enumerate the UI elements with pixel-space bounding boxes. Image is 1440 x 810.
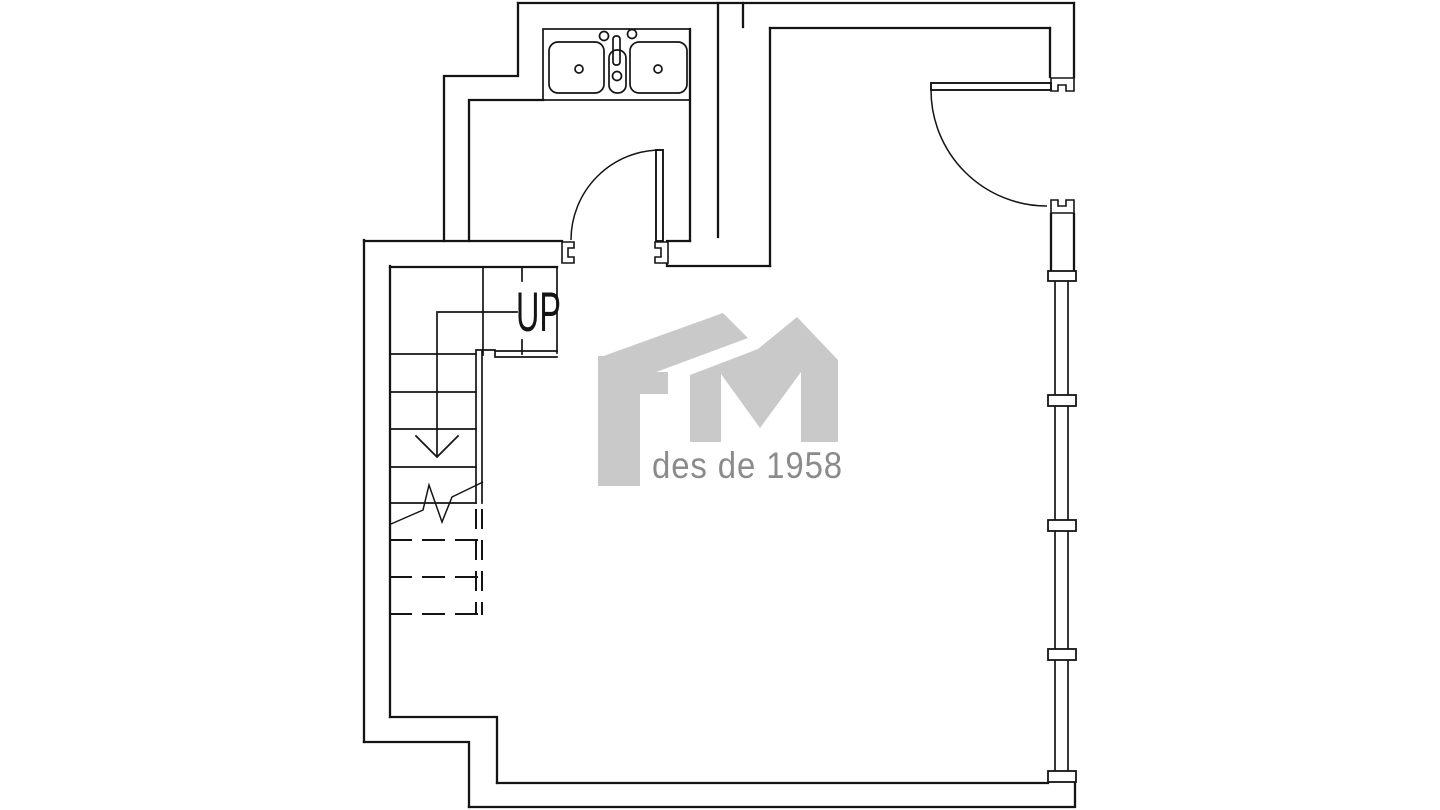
- stair-stringer: [476, 350, 495, 503]
- interior-door: [562, 150, 668, 263]
- sink-basin-left: [549, 42, 604, 93]
- sink-hole-right-icon: [628, 30, 637, 39]
- stair-direction-arrow-icon: [437, 312, 517, 455]
- sink-hole-left-icon: [600, 32, 609, 41]
- entry-door-jamb-bottom: [1051, 200, 1074, 213]
- sink-basin-right: [630, 42, 687, 93]
- interior-door-jamb-right: [655, 242, 668, 263]
- floor-plan-page: des de 1958: [0, 0, 1440, 810]
- stair-landing-bottom-edge: [495, 351, 557, 357]
- interior-door-jamb-left: [562, 242, 574, 263]
- window-sill-bar-4: [1048, 649, 1076, 660]
- window-sill-bar-5: [1048, 771, 1076, 782]
- alcove-west-wall: [469, 100, 543, 241]
- window-wall: [1048, 271, 1076, 782]
- entry-door-leaf: [931, 83, 1051, 90]
- interior-door-swing-icon: [571, 150, 661, 240]
- interior-door-leaf: [656, 150, 663, 241]
- drain-left-icon: [575, 65, 583, 73]
- entry-door: [931, 78, 1074, 213]
- window-sill-bar-2: [1048, 395, 1076, 406]
- stair-treads: [390, 354, 476, 503]
- kitchen-sink: [543, 29, 690, 100]
- watermark-logo: des de 1958: [598, 313, 843, 486]
- watermark-tagline: des de 1958: [652, 445, 843, 486]
- faucet-hole-icon: [613, 72, 622, 81]
- drain-right-icon: [654, 65, 662, 73]
- floor-plan-drawing: des de 1958: [0, 0, 1440, 810]
- stairs-up-label: UP: [516, 280, 561, 343]
- upper-left-wall: [444, 3, 518, 241]
- lower-left-step-inner: [390, 717, 497, 783]
- bottom-outer-wall: [469, 782, 1075, 807]
- entry-door-jamb-top: [1051, 78, 1074, 91]
- window-sill-bar-3: [1048, 520, 1076, 531]
- staircase: UP: [390, 267, 561, 614]
- stair-treads-hidden: [390, 540, 483, 614]
- window-sill-bar-1: [1048, 271, 1076, 281]
- alcove-south-wall-east: [667, 241, 770, 266]
- lower-left-step-outer: [364, 742, 469, 807]
- entry-door-swing-icon: [931, 90, 1047, 206]
- watermark-letter-f-stem: [598, 356, 640, 486]
- stair-stringer-hidden: [476, 510, 482, 614]
- watermark-letter-f-arm: [640, 372, 668, 394]
- right-wall-below-door: [1051, 214, 1074, 271]
